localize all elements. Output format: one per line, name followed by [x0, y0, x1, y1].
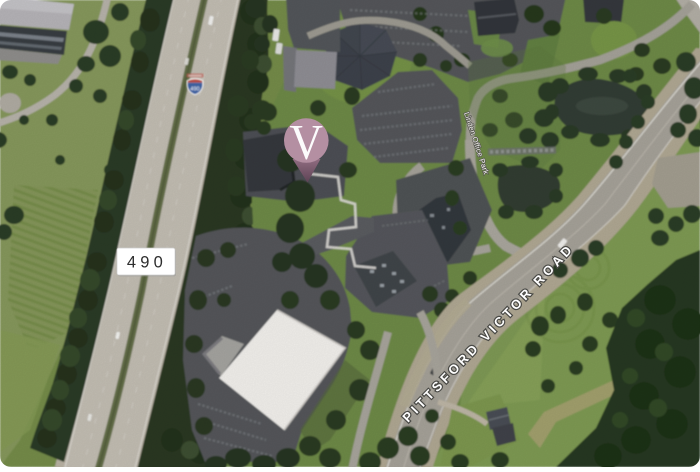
svg-text:490: 490 [190, 87, 199, 93]
svg-text:490: 490 [127, 254, 167, 272]
svg-text:V: V [290, 114, 324, 170]
